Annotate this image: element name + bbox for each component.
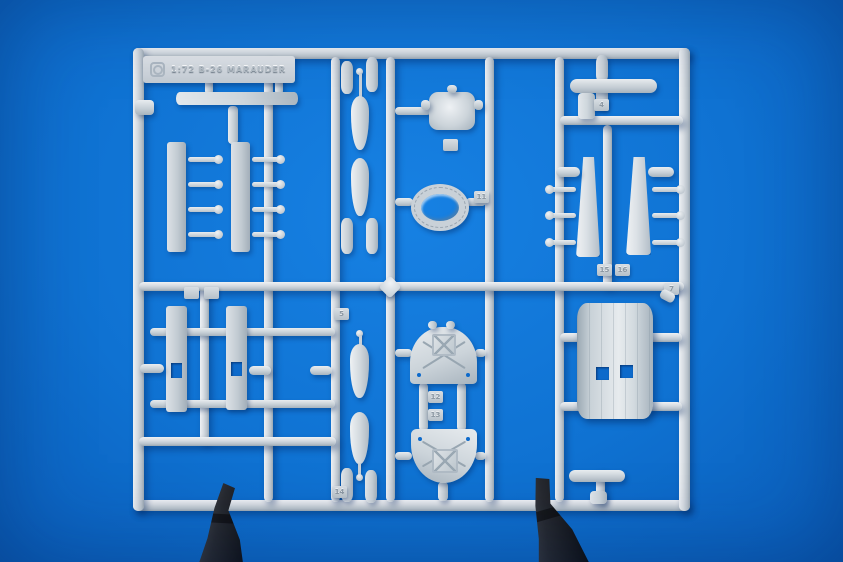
part-fuselage-panel xyxy=(577,303,653,419)
part-ball-pin xyxy=(652,187,680,192)
part-small-pill xyxy=(556,167,580,177)
bulkhead-nub xyxy=(428,321,437,329)
part-bomb xyxy=(351,96,369,150)
part-number-tag: 13 xyxy=(428,409,443,421)
part-number-tag: 16 xyxy=(615,264,630,276)
part-long-panel xyxy=(226,306,247,410)
part-number-tag xyxy=(443,139,458,151)
part-block xyxy=(590,491,607,504)
sprue-label-text: 1:72 B-26 MARAUDER xyxy=(171,65,286,74)
pin-ball xyxy=(214,180,223,189)
clip-body xyxy=(192,482,251,562)
part-ball-pin xyxy=(252,182,280,187)
panel-hole xyxy=(231,362,242,376)
bulkhead-hole xyxy=(417,373,421,377)
part-ball-pin xyxy=(252,207,280,212)
part-ball-pin xyxy=(188,157,218,162)
holding-clip-left xyxy=(192,482,251,562)
pin-ball xyxy=(545,185,554,194)
clip-spring-band xyxy=(204,513,239,525)
part-number-tag xyxy=(204,287,219,299)
part-ball-pin xyxy=(550,187,576,192)
part-bulkhead-rear xyxy=(411,429,477,483)
part-ball-pin xyxy=(652,213,680,218)
runner-vertical-8 xyxy=(200,287,209,443)
engine-shaft xyxy=(447,85,457,93)
molded-tab xyxy=(135,100,154,115)
part-ball-pin xyxy=(252,157,280,162)
part-number-tag: 12 xyxy=(428,391,443,403)
gate-stub xyxy=(395,452,412,460)
brand-logo-icon xyxy=(150,62,165,77)
pin-ball xyxy=(276,230,285,239)
part-small-pill xyxy=(569,470,625,482)
pin-ball xyxy=(276,205,285,214)
part-small-pill xyxy=(310,366,332,375)
runner-horizontal-mid xyxy=(139,282,684,291)
part-ball-pin xyxy=(550,240,576,245)
part-ball-pin xyxy=(550,213,576,218)
pin-ball xyxy=(545,211,554,220)
part-drop-tank xyxy=(570,79,657,93)
pin-ball xyxy=(214,230,223,239)
pin-ball xyxy=(545,238,554,247)
part-antenna-stem xyxy=(359,74,362,98)
pin-ball xyxy=(214,205,223,214)
gate-stub xyxy=(228,106,238,144)
part-number-tag: 14 xyxy=(332,486,347,498)
part-ball-pin xyxy=(188,232,218,237)
runner-vertical-2 xyxy=(331,57,340,502)
engine-shaft xyxy=(474,100,483,110)
bulkhead-nub xyxy=(446,321,455,329)
part-ball-pin xyxy=(652,240,680,245)
runner-vertical-1 xyxy=(264,57,273,502)
gate-stub xyxy=(438,482,448,501)
part-number-tag: 15 xyxy=(597,264,612,276)
photo-vignette xyxy=(0,0,843,562)
part-ball-pin xyxy=(188,207,218,212)
gate-stub xyxy=(419,383,428,431)
bulkhead-hole xyxy=(466,373,470,377)
panel-hole xyxy=(171,363,182,378)
part-number-tag: 5 xyxy=(334,308,349,320)
runner-junction-node xyxy=(379,276,402,299)
part-bomb xyxy=(350,412,369,464)
clip-spring-band xyxy=(527,504,566,524)
holding-clip-right xyxy=(508,470,590,562)
part-number-tag: 11 xyxy=(474,191,489,203)
brand-logo-circle xyxy=(153,65,163,75)
part-small-pill xyxy=(648,167,674,177)
part-antenna-ball xyxy=(356,474,363,481)
part-cylinder xyxy=(341,218,353,254)
part-cylinder xyxy=(341,61,353,94)
panel-hole xyxy=(620,365,633,378)
part-cylinder xyxy=(365,470,377,503)
pin-ball xyxy=(276,155,285,164)
part-cylinder xyxy=(366,57,378,92)
pin-ball xyxy=(676,185,685,194)
photo-model-kit-sprue: 1:72 B-26 MARAUDER 11 xyxy=(0,0,843,562)
part-number-tag xyxy=(184,287,199,299)
engine-shaft xyxy=(421,100,430,110)
bulkhead-hatch xyxy=(432,334,456,356)
pin-ball xyxy=(214,155,223,164)
clip-body xyxy=(508,470,590,562)
pin-ball xyxy=(676,211,685,220)
part-ball-pin xyxy=(188,182,218,187)
sprue-label: 1:72 B-26 MARAUDER xyxy=(143,56,295,83)
bulkhead-hole xyxy=(466,437,470,441)
part-cockpit-floor xyxy=(176,92,298,105)
part-side-panel xyxy=(167,142,186,252)
part-number-tag: 4 xyxy=(594,99,609,111)
gate-stub xyxy=(475,349,486,357)
panel-hole xyxy=(596,367,609,380)
part-small-pill xyxy=(140,364,164,373)
bulkhead-hatch xyxy=(432,449,458,473)
part-small-pill xyxy=(249,366,271,375)
part-bulkhead-front xyxy=(410,327,477,384)
part-bomb xyxy=(350,344,369,398)
part-bomb xyxy=(351,158,369,216)
part-cylinder xyxy=(366,218,378,254)
pin-ball xyxy=(676,238,685,247)
runner-vertical-6 xyxy=(603,125,612,287)
part-long-panel xyxy=(166,306,187,412)
runner-vertical-4 xyxy=(485,57,494,502)
part-ball-pin xyxy=(252,232,280,237)
part-radial-engine xyxy=(429,92,475,130)
part-bracket xyxy=(578,93,595,119)
pin-ball xyxy=(276,180,285,189)
part-cowl-ring xyxy=(411,184,469,231)
gate-stub xyxy=(457,383,466,431)
runner-horizontal-left-bottom xyxy=(139,437,336,446)
part-side-panel xyxy=(231,142,250,252)
bulkhead-hole xyxy=(418,437,422,441)
gate-stub xyxy=(475,452,486,460)
